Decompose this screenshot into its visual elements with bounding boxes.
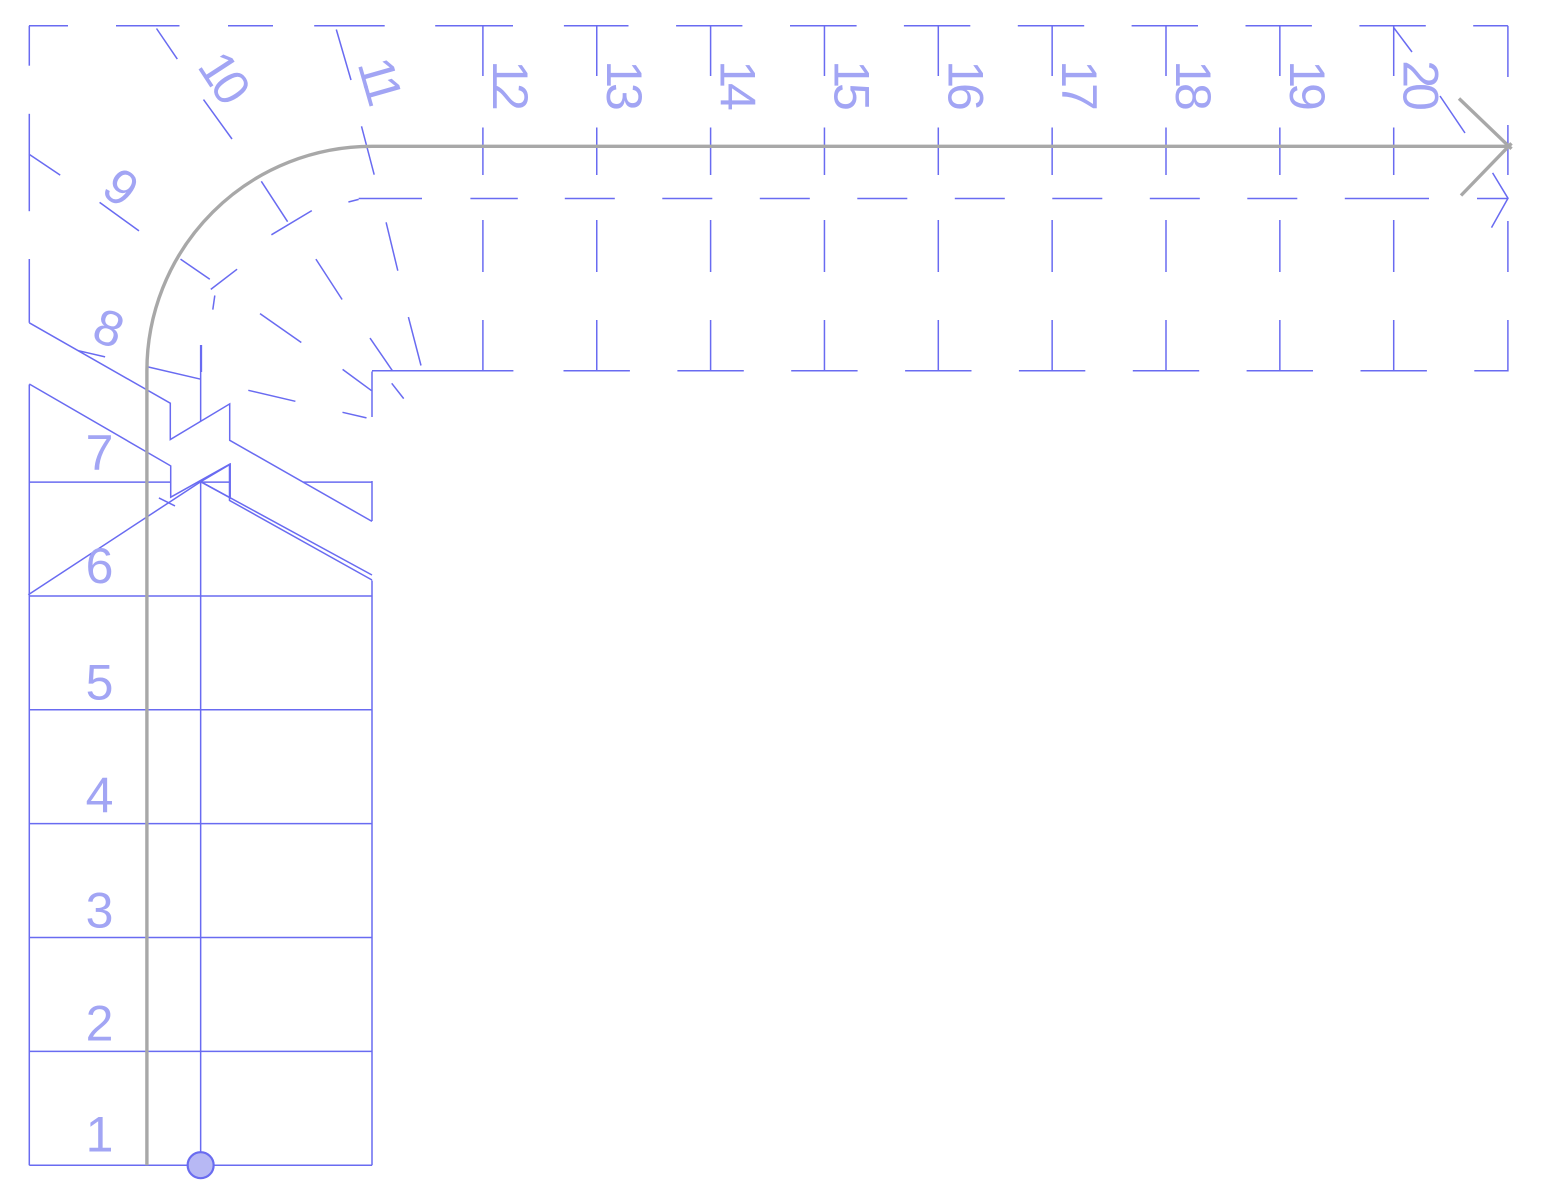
svg-text:20: 20	[1393, 60, 1449, 109]
svg-text:3: 3	[86, 883, 114, 939]
svg-text:13: 13	[596, 60, 652, 109]
svg-text:9: 9	[93, 157, 149, 218]
svg-text:11: 11	[347, 51, 413, 110]
svg-text:1: 1	[86, 1107, 114, 1163]
svg-text:2: 2	[86, 996, 114, 1052]
svg-text:15: 15	[824, 60, 880, 109]
svg-text:14: 14	[710, 60, 766, 110]
svg-text:12: 12	[482, 60, 538, 109]
svg-text:19: 19	[1279, 60, 1335, 109]
svg-text:10: 10	[187, 42, 261, 113]
svg-text:5: 5	[86, 655, 114, 711]
svg-text:6: 6	[86, 538, 114, 594]
svg-text:8: 8	[86, 297, 131, 359]
svg-text:4: 4	[86, 768, 114, 824]
svg-text:7: 7	[86, 425, 114, 481]
svg-text:17: 17	[1051, 60, 1107, 109]
svg-text:16: 16	[937, 60, 993, 109]
svg-text:18: 18	[1165, 60, 1221, 109]
